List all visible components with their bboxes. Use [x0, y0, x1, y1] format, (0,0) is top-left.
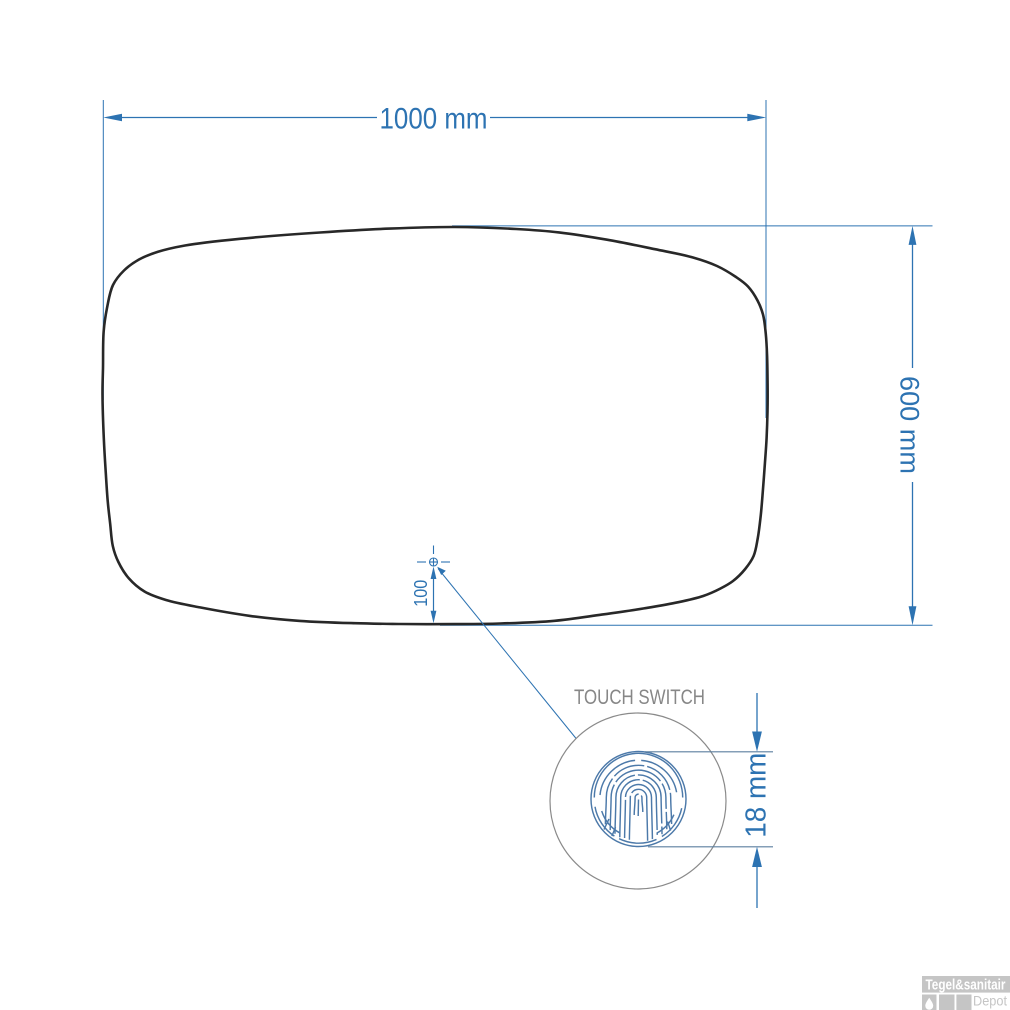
svg-text:1000 mm: 1000 mm [380, 103, 488, 136]
svg-text:Tegel&sanitair: Tegel&sanitair [926, 978, 1006, 994]
svg-text:18 mm: 18 mm [741, 753, 773, 838]
svg-text:100: 100 [410, 580, 431, 607]
svg-text:600 mm: 600 mm [895, 376, 925, 474]
svg-text:TOUCH SWITCH: TOUCH SWITCH [574, 686, 705, 709]
svg-text:Depot: Depot [973, 993, 1007, 1009]
